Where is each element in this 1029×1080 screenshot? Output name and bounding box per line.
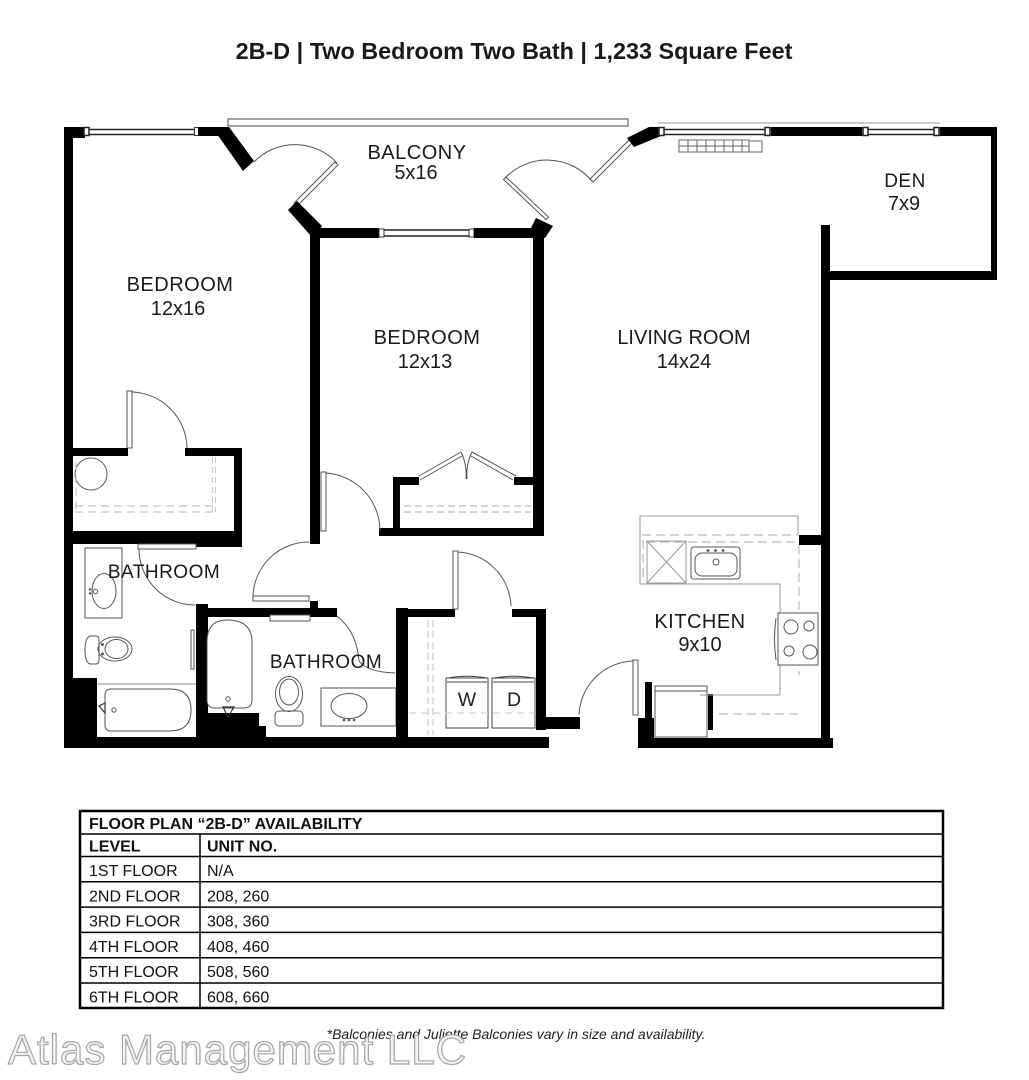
svg-text:KITCHEN: KITCHEN (654, 611, 745, 633)
svg-text:W: W (458, 689, 477, 711)
svg-text:LIVING ROOM: LIVING ROOM (617, 327, 750, 349)
svg-text:N/A: N/A (207, 863, 234, 880)
svg-text:4TH FLOOR: 4TH FLOOR (89, 939, 179, 956)
svg-text:UNIT NO.: UNIT NO. (207, 839, 277, 856)
svg-text:5x16: 5x16 (394, 162, 437, 184)
svg-text:1ST FLOOR: 1ST FLOOR (89, 863, 178, 880)
svg-text:14x24: 14x24 (657, 351, 712, 373)
svg-text:DEN: DEN (884, 171, 926, 192)
svg-text:508, 560: 508, 560 (207, 964, 269, 981)
svg-text:308, 360: 308, 360 (207, 914, 269, 931)
svg-text:D: D (507, 689, 521, 711)
svg-text:BEDROOM: BEDROOM (374, 327, 481, 349)
svg-text:BEDROOM: BEDROOM (127, 274, 234, 296)
svg-text:BATHROOM: BATHROOM (108, 562, 220, 583)
svg-text:408, 460: 408, 460 (207, 939, 269, 956)
svg-text:BALCONY: BALCONY (367, 142, 466, 164)
svg-text:2B-D | Two Bedroom Two Bath |: 2B-D | Two Bedroom Two Bath | 1,233 Squa… (236, 38, 793, 64)
svg-text:Atlas Management LLC: Atlas Management LLC (8, 1026, 467, 1073)
svg-text:12x13: 12x13 (398, 351, 453, 373)
svg-text:BATHROOM: BATHROOM (270, 652, 382, 673)
svg-text:608, 660: 608, 660 (207, 990, 269, 1007)
svg-text:LEVEL: LEVEL (89, 839, 141, 856)
svg-text:208, 260: 208, 260 (207, 888, 269, 905)
svg-text:5TH FLOOR: 5TH FLOOR (89, 964, 179, 981)
svg-text:FLOOR PLAN “2B-D” AVAILABILITY: FLOOR PLAN “2B-D” AVAILABILITY (89, 816, 363, 833)
svg-text:9x10: 9x10 (678, 634, 721, 656)
svg-text:3RD FLOOR: 3RD FLOOR (89, 914, 181, 931)
svg-text:2ND FLOOR: 2ND FLOOR (89, 888, 181, 905)
svg-text:7x9: 7x9 (888, 193, 920, 215)
svg-text:12x16: 12x16 (151, 298, 206, 320)
svg-text:6TH FLOOR: 6TH FLOOR (89, 990, 179, 1007)
